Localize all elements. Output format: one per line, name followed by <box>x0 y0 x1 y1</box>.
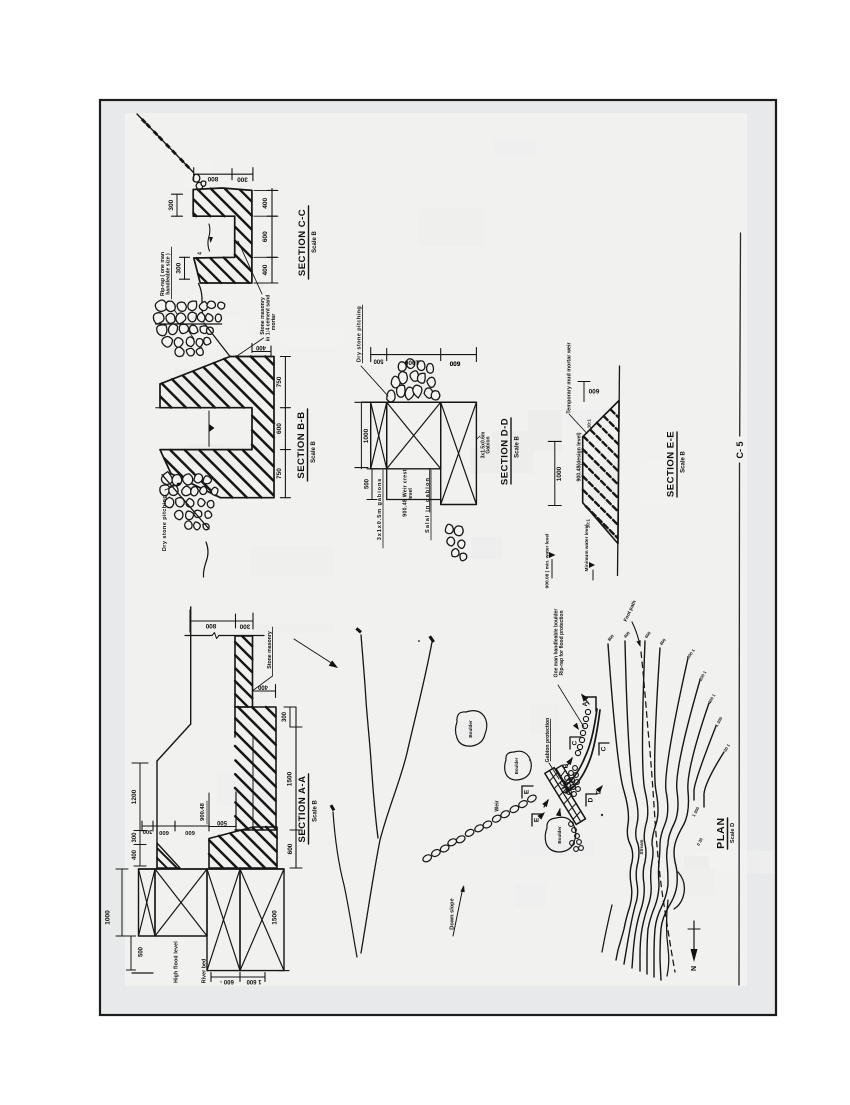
svg-text:4: 4 <box>197 252 203 255</box>
svg-text:A: A <box>582 701 589 706</box>
svg-text:1 600: 1 600 <box>246 978 262 984</box>
svg-text:PLAN: PLAN <box>715 817 727 849</box>
svg-text:Scale B: Scale B <box>681 450 687 472</box>
svg-text:750: 750 <box>276 468 283 479</box>
svg-text:Rip-rap for flood protection: Rip-rap for flood protection <box>559 611 565 676</box>
svg-text:level: level <box>408 488 414 500</box>
svg-text:B: B <box>563 763 570 768</box>
svg-text:600: 600 <box>185 829 195 835</box>
svg-text:SECTION A-A: SECTION A-A <box>297 776 308 843</box>
svg-text:Temporary mud mortar weir: Temporary mud mortar weir <box>566 342 572 414</box>
svg-text:Dry stone pitching: Dry stone pitching <box>356 306 362 362</box>
svg-text:1500: 1500 <box>272 910 279 925</box>
svg-text:SECTION E-E: SECTION E-E <box>666 431 677 497</box>
svg-text:mortar: mortar <box>271 314 277 330</box>
svg-text:N: N <box>691 966 698 971</box>
svg-text:SECTION C-C: SECTION C-C <box>297 209 308 276</box>
svg-text:C: C <box>601 746 608 751</box>
svg-text:E: E <box>534 817 541 822</box>
svg-text:Scale B: Scale B <box>515 435 521 457</box>
svg-text:400: 400 <box>132 849 138 860</box>
svg-text:900.48: 900.48 <box>200 802 206 821</box>
svg-text:500: 500 <box>365 478 371 489</box>
svg-text:750: 750 <box>276 376 283 387</box>
svg-text:400: 400 <box>262 197 269 208</box>
svg-text:Scale D: Scale D <box>730 823 736 843</box>
svg-text:600: 600 <box>276 423 283 434</box>
svg-text:800: 800 <box>207 175 218 182</box>
svg-text:River bed: River bed <box>201 959 207 984</box>
svg-text:E: E <box>524 789 531 794</box>
svg-text:Scale B: Scale B <box>311 440 317 462</box>
svg-text:D: D <box>597 789 603 794</box>
svg-text:900.48(design level): 900.48(design level) <box>577 432 583 481</box>
svg-text:Stream: Stream <box>639 839 644 854</box>
svg-text:1000: 1000 <box>363 428 370 443</box>
svg-text:600: 600 <box>159 829 169 835</box>
svg-text:D: D <box>588 797 595 802</box>
svg-text:Boulder: Boulder <box>557 826 562 844</box>
svg-text:1000: 1000 <box>556 466 563 481</box>
svg-text:C- 5: C- 5 <box>735 441 745 458</box>
svg-text:300: 300 <box>143 828 153 834</box>
svg-text:600: 600 <box>449 359 460 366</box>
svg-text:1500: 1500 <box>287 771 294 786</box>
svg-text:Boulder: Boulder <box>514 757 519 774</box>
svg-text:600: 600 <box>588 387 599 394</box>
svg-text:High flood level: High flood level <box>173 941 179 983</box>
svg-text:800: 800 <box>205 622 216 629</box>
svg-text:500: 500 <box>216 819 227 825</box>
svg-text:300: 300 <box>168 199 175 210</box>
svg-text:Weir: Weir <box>494 800 500 811</box>
svg-text:400: 400 <box>262 264 269 275</box>
svg-text:Gabion: Gabion <box>485 436 491 453</box>
svg-text:600: 600 <box>287 843 294 854</box>
svg-text:Stone masonry: Stone masonry <box>267 631 273 669</box>
svg-text:400: 400 <box>255 344 266 350</box>
svg-text:Boulder: Boulder <box>468 720 473 738</box>
svg-text:300: 300 <box>176 262 183 273</box>
svg-text:C: C <box>572 740 579 745</box>
svg-text:1000: 1000 <box>105 910 112 925</box>
svg-text:10:1: 10:1 <box>587 419 592 429</box>
svg-text:300: 300 <box>237 175 248 182</box>
svg-text:300: 300 <box>132 832 138 843</box>
svg-text:600: 600 <box>262 231 269 242</box>
svg-text:Scale B: Scale B <box>313 799 319 821</box>
svg-text:500: 500 <box>139 946 145 957</box>
svg-text:500: 500 <box>373 357 384 363</box>
svg-text:1000: 1000 <box>404 358 419 365</box>
svg-text:300: 300 <box>282 711 288 722</box>
svg-text:Dry stone pitching: Dry stone pitching <box>162 495 168 551</box>
svg-text:300: 300 <box>239 622 250 629</box>
svg-text:SECTION B-B: SECTION B-B <box>296 411 307 478</box>
svg-text:Scale B: Scale B <box>312 230 318 252</box>
svg-text:600 -: 600 - <box>220 978 234 984</box>
svg-text:Gabion protection: Gabion protection <box>545 718 551 763</box>
svg-text:handleable size ): handleable size ) <box>165 253 171 295</box>
svg-text:SECTION D-D: SECTION D-D <box>500 418 511 485</box>
svg-text:Salal in gabion: Salal in gabion <box>425 477 431 533</box>
svg-text:400: 400 <box>257 683 268 689</box>
svg-text:3x1x0.5m gabions: 3x1x0.5m gabions <box>377 478 383 541</box>
svg-text:900.08 ( min. water level: 900.08 ( min. water level <box>544 534 550 589</box>
svg-text:Down slope: Down slope <box>449 898 455 929</box>
svg-text:1200: 1200 <box>131 789 138 804</box>
